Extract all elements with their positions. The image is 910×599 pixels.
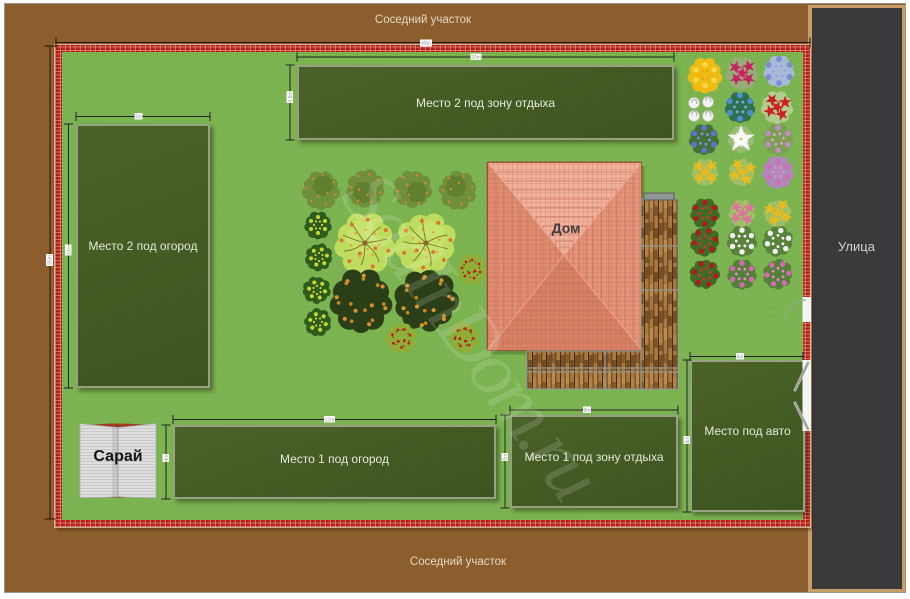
- svg-text:17m: 17m: [325, 417, 335, 423]
- svg-text:20m: 20m: [471, 55, 481, 61]
- svg-text:4.5m: 4.5m: [288, 91, 294, 102]
- svg-text:4m: 4m: [164, 455, 170, 462]
- svg-text:Дом: Дом: [552, 220, 581, 236]
- svg-text:7m: 7m: [135, 114, 142, 120]
- svg-text:6m: 6m: [737, 354, 744, 360]
- svg-text:14m: 14m: [66, 245, 72, 255]
- svg-text:8m: 8m: [685, 437, 691, 444]
- svg-text:5m: 5m: [503, 454, 509, 461]
- svg-text:Сарай: Сарай: [93, 448, 142, 465]
- svg-text:25m: 25m: [48, 255, 54, 265]
- svg-text:9m: 9m: [584, 408, 591, 414]
- svg-text:40m: 40m: [421, 41, 431, 47]
